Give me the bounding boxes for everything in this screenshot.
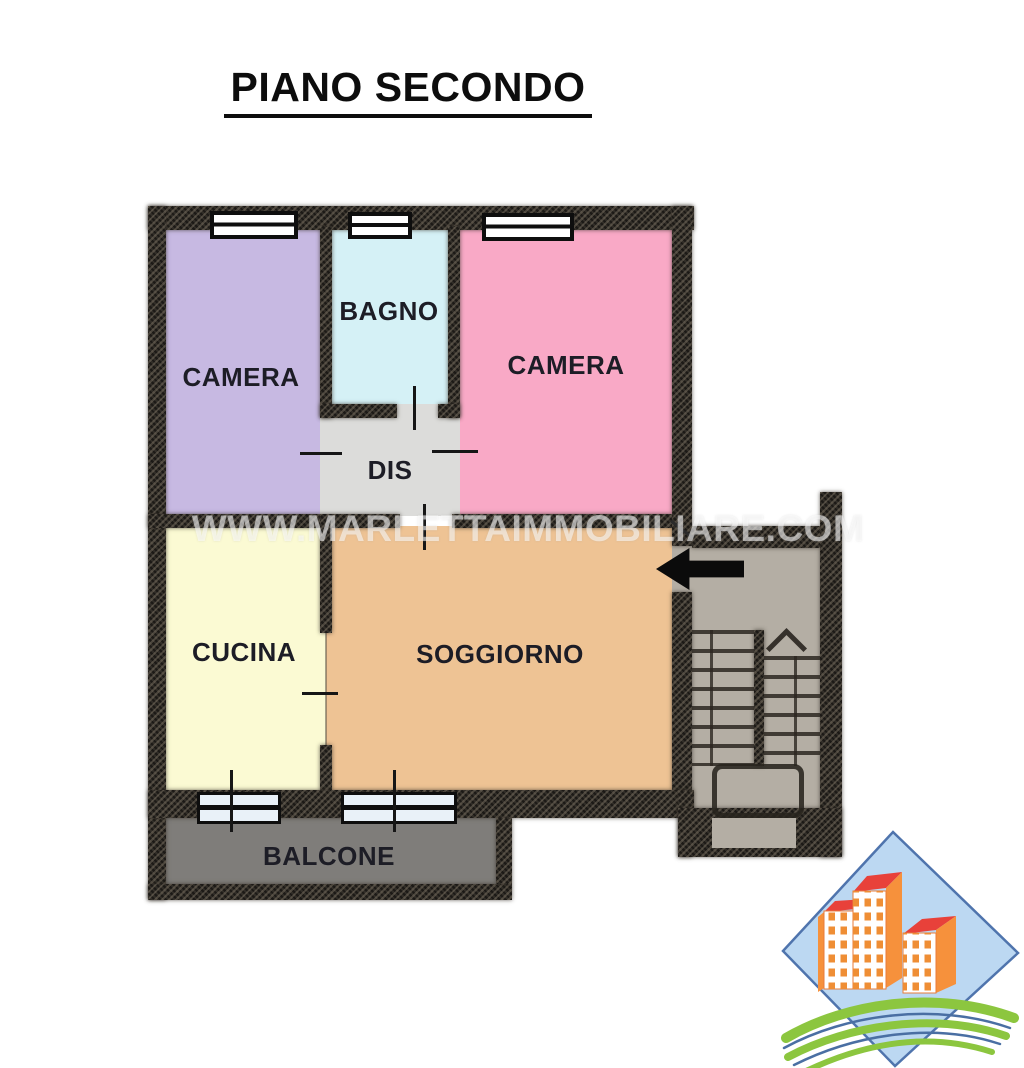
outer-wall-right-lower (672, 592, 692, 791)
label-soggiorno: SOGGIORNO (326, 639, 674, 670)
french-window-soggiorno-axis (393, 770, 396, 832)
label-camera-1: CAMERA (162, 362, 320, 393)
wall-bagno-bottom-left (320, 404, 397, 418)
stair-steps-left-flight (692, 630, 754, 766)
label-cucina: CUCINA (162, 637, 326, 668)
stair-flight-divider (754, 630, 764, 766)
page-title: PIANO SECONDO (148, 64, 668, 111)
label-camera-2: CAMERA (458, 350, 674, 381)
french-window-cucina (197, 792, 281, 824)
outer-wall-right-upper (672, 206, 692, 546)
label-balcone: BALCONE (162, 841, 496, 872)
label-dis: DIS (320, 455, 460, 486)
wall-bagno-camera2 (448, 226, 460, 418)
stair-bottom-landing (712, 764, 804, 818)
balcony-wall-right (496, 818, 512, 884)
wall-bagno-bottom-right (438, 404, 460, 418)
page-title-text: PIANO SECONDO (224, 64, 591, 118)
floor-plan-page: PIANO SECONDO (0, 0, 1024, 1068)
window-camera-2 (482, 213, 574, 241)
wall-cucina-soggiorno-lower (320, 745, 332, 792)
stair-rail-line-left (710, 630, 713, 766)
balcony-wall-bottom (148, 884, 512, 900)
door-camera2-dis (432, 450, 478, 453)
watermark: WWW.MARLETTAIMMOBILIARE.COM (156, 508, 900, 550)
french-window-cucina-axis (230, 770, 233, 832)
label-bagno: BAGNO (330, 296, 448, 327)
stair-rail-line-right (794, 656, 797, 766)
window-camera-1 (210, 211, 298, 239)
window-bagno (348, 212, 412, 239)
agency-logo (778, 826, 1024, 1068)
french-window-soggiorno (341, 792, 457, 824)
stair-steps-right-flight (764, 656, 820, 766)
door-cucina-soggiorno (302, 692, 338, 695)
door-bagno-dis (413, 386, 416, 430)
